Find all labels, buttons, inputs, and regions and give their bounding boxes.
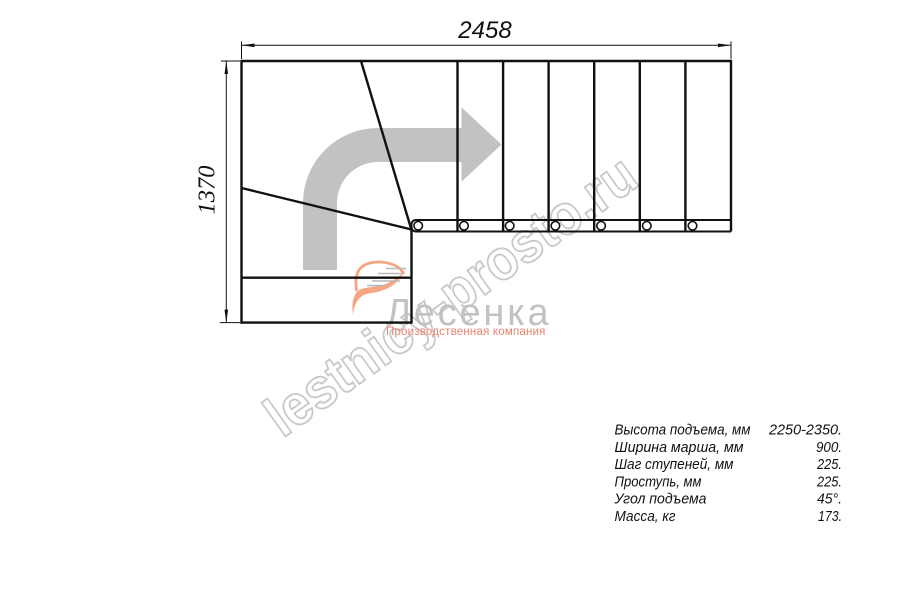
svg-text:Высота подъема, мм: Высота подъема, мм bbox=[615, 422, 752, 439]
svg-text:225.: 225. bbox=[816, 456, 842, 473]
svg-text:2458: 2458 bbox=[457, 17, 512, 44]
svg-text:225.: 225. bbox=[816, 473, 842, 490]
svg-text:Проступь, мм: Проступь, мм bbox=[615, 473, 703, 490]
svg-text:Масса, кг: Масса, кг bbox=[615, 508, 676, 525]
svg-text:Ширина марша, мм: Ширина марша, мм bbox=[615, 439, 745, 456]
svg-text:Шаг ступеней, мм: Шаг ступеней, мм bbox=[615, 456, 735, 473]
svg-text:1370: 1370 bbox=[194, 166, 221, 215]
svg-text:173.: 173. bbox=[818, 508, 842, 525]
svg-text:900.: 900. bbox=[816, 439, 842, 456]
svg-text:2250-2350.: 2250-2350. bbox=[768, 422, 842, 439]
svg-text:Угол подъема: Угол подъема bbox=[614, 491, 707, 508]
svg-text:Производственная компания: Производственная компания bbox=[386, 326, 546, 338]
svg-text:45°.: 45°. bbox=[817, 491, 842, 508]
